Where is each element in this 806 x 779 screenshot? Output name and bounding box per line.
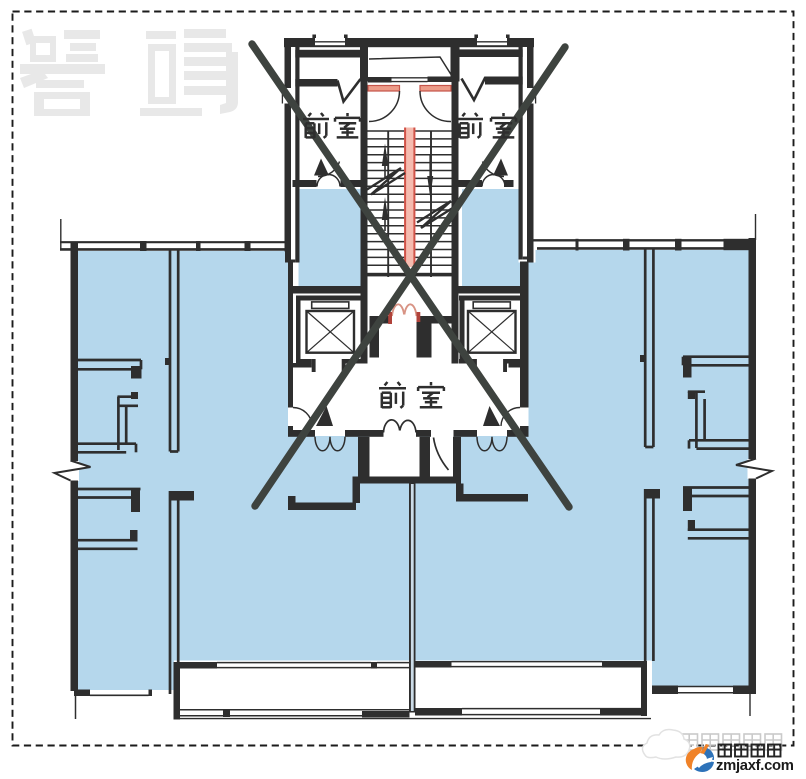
svg-text:zmjaxf.com: zmjaxf.com [716, 758, 794, 774]
